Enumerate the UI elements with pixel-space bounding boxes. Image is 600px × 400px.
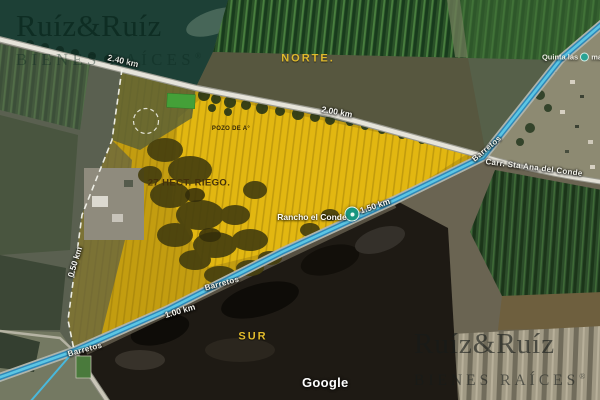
south-label: SUR <box>238 332 267 343</box>
brand-tagline-text: BIENES RAÍCES <box>414 372 579 389</box>
brand-logo-top-left: Ruíz&Ruíz BIENES RAÍCES® <box>16 8 206 70</box>
brand-tagline: BIENES RAÍCES® <box>414 372 589 390</box>
farm-buildings <box>84 168 144 240</box>
brand-tagline-text: BIENES RAÍCES <box>16 50 195 69</box>
satellite-map[interactable]: NORTE. SUR 27 HECT. RIEGO. POZO DE A° 2.… <box>0 0 600 400</box>
quinta-marker-icon <box>580 53 589 62</box>
brand-name: Ruíz&Ruíz <box>414 328 589 361</box>
place-label-quinta-suffix: ma <box>591 53 600 61</box>
place-label-rancho: Rancho el Conde <box>277 213 346 222</box>
brand-name: Ruíz&Ruíz <box>16 8 206 44</box>
brand-tagline: BIENES RAÍCES® <box>16 50 206 70</box>
registered-mark: ® <box>579 372 589 381</box>
north-label: NORTE. <box>281 54 335 65</box>
place-label-quinta-prefix: Quinta las <box>542 53 578 61</box>
property-area-label: 27 HECT. RIEGO. <box>148 178 231 188</box>
place-label-quinta: Quinta las ma <box>542 53 600 62</box>
registered-mark: ® <box>195 52 206 61</box>
place-marker-icon <box>345 207 360 222</box>
well-label: POZO DE A° <box>212 126 250 132</box>
brand-logo-bottom-right: Ruíz&Ruíz BIENES RAÍCES® <box>414 328 589 390</box>
google-watermark: Google <box>302 375 349 390</box>
